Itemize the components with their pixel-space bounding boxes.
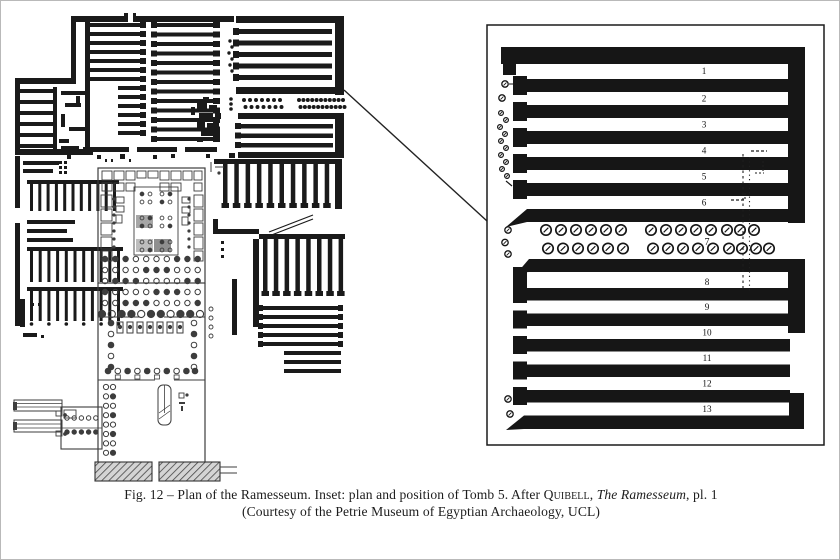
ramesseum-plan-figure: 12345678910111213 (1, 1, 840, 488)
caption-segment: Quibell (544, 487, 590, 502)
inset-room-label-4: 4 (702, 146, 707, 156)
figure-page: 12345678910111213 Fig. 12 – Plan of the … (0, 0, 840, 560)
first-pylon (95, 462, 237, 481)
east-magazines (213, 159, 345, 373)
magazines-top-left (15, 13, 235, 162)
caption-segment: , (590, 487, 597, 502)
connector (344, 90, 487, 221)
figure-artwork: 12345678910111213 (1, 1, 840, 488)
inset-room-label-10: 10 (702, 328, 712, 338)
inset-room-label-1: 1 (702, 66, 707, 76)
inset-room-label-12: 12 (702, 379, 712, 389)
inset-room-label-9: 9 (705, 302, 710, 312)
inset-tomb5-plan: 12345678910111213 (487, 25, 824, 445)
caption-line-1: Fig. 12 – Plan of the Ramesseum. Inset: … (1, 487, 840, 504)
inset-room-label-11: 11 (703, 353, 712, 363)
caption-line-2: (Courtesy of the Petrie Museum of Egypti… (1, 504, 840, 521)
main-plan-drawing (13, 13, 346, 481)
tomb5-block-mini (228, 16, 346, 158)
inset-room-label-13: 13 (702, 404, 712, 414)
inset-room-label-5: 5 (702, 172, 707, 182)
caption-segment: The Ramesseum (597, 487, 686, 502)
inset-room-label-3: 3 (702, 120, 707, 130)
first-court (103, 384, 188, 455)
inset-room-label-6: 6 (702, 198, 707, 208)
caption-segment: , pl. 1 (686, 487, 718, 502)
inset-colonnade-label: 7 (705, 237, 710, 248)
hypostyle-hall (98, 256, 203, 317)
inset-room-label-2: 2 (702, 94, 707, 104)
caption-segment: Fig. 12 – Plan of the Ramesseum. Inset: … (124, 487, 543, 502)
connector-line (344, 90, 487, 221)
figure-caption: Fig. 12 – Plan of the Ramesseum. Inset: … (1, 487, 840, 521)
inset-room-label-8: 8 (705, 277, 710, 287)
